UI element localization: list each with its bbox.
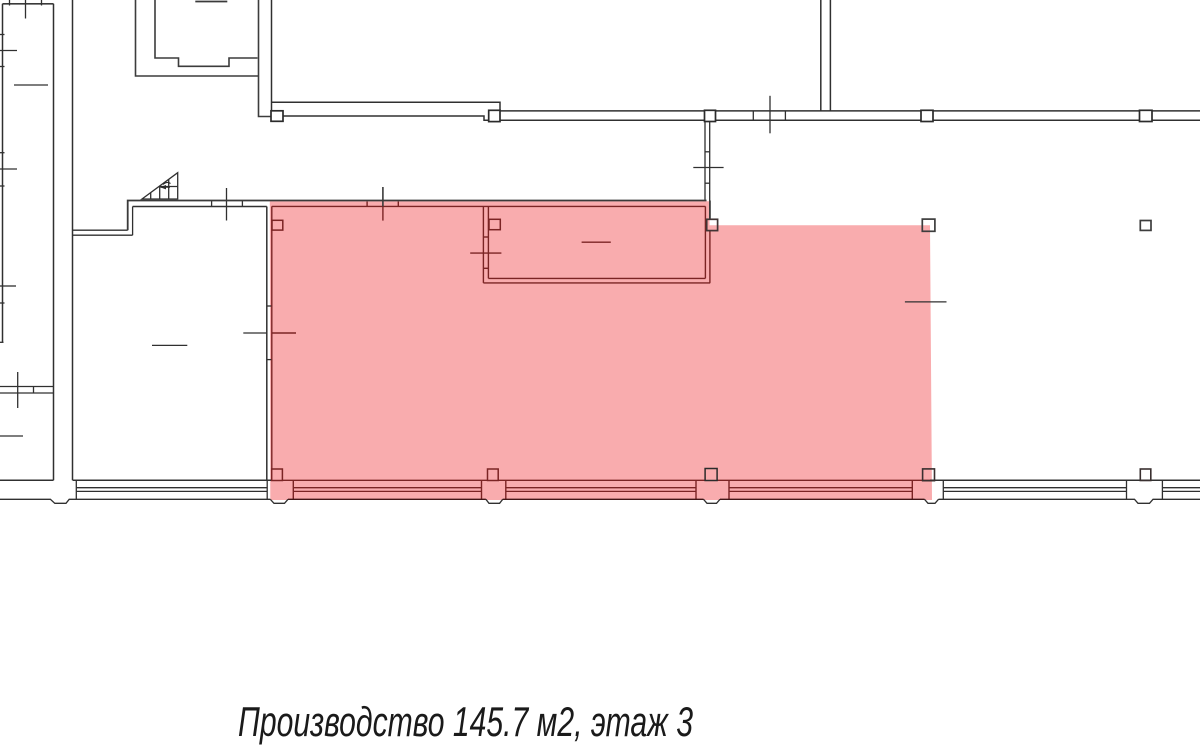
svg-text:Производство 145.7 м2, этаж 3: Производство 145.7 м2, этаж 3	[238, 698, 693, 745]
